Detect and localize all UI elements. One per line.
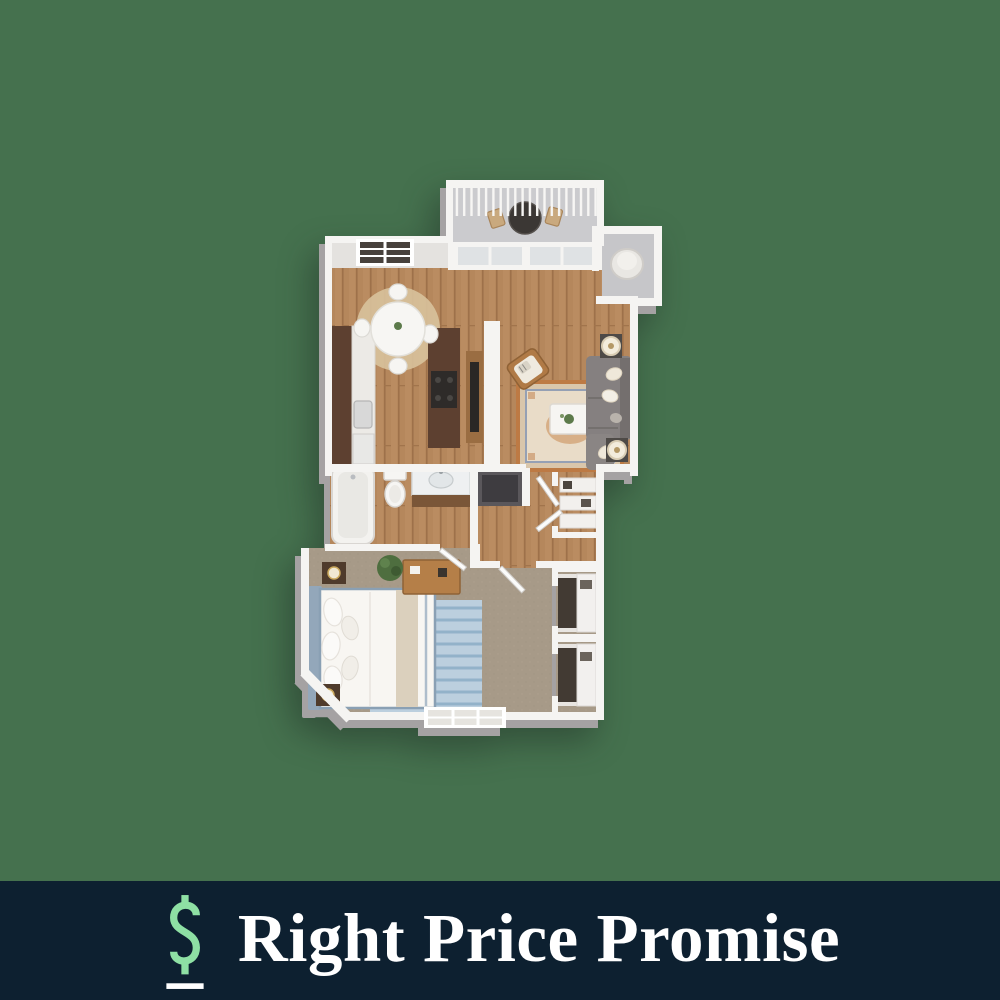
dollar-sign-icon [160, 891, 210, 993]
balcony-balusters [450, 186, 600, 216]
laundry-dark-recess [482, 475, 518, 502]
outer-wall [630, 298, 638, 476]
outer-wall [301, 548, 309, 676]
tv [470, 362, 479, 432]
table-centerpiece [394, 322, 402, 330]
cooktop [431, 371, 457, 408]
water-heater [611, 249, 643, 279]
coffee-table [550, 404, 588, 434]
half-wall [484, 321, 500, 471]
outer-wall [325, 236, 332, 476]
balcony-rail [446, 180, 604, 188]
linen-closet [560, 478, 596, 528]
side-table-lamp [600, 334, 622, 358]
sliding-glass-door [448, 242, 602, 270]
icon-underline [166, 983, 203, 989]
kitchen-appliance [353, 434, 374, 464]
side-table-lamp [606, 438, 628, 462]
kitchen-sink [354, 401, 372, 428]
hanging-clothes [558, 648, 577, 702]
floor-plan [300, 175, 665, 737]
kitchen-cabinets [330, 326, 352, 466]
bedroom-closet [558, 574, 596, 632]
dining-chair [389, 358, 407, 374]
potted-plant [377, 555, 403, 581]
banner-title: Right Price Promise [238, 904, 840, 977]
toilet [384, 469, 406, 507]
floor-plan-render [300, 175, 665, 737]
dresser [403, 560, 460, 594]
vanity [412, 466, 470, 507]
kitchen-window [356, 239, 414, 266]
bedroom-closet [558, 644, 596, 706]
page-background: Right Price Promise [0, 0, 1000, 1000]
dining-chair [354, 319, 370, 337]
bedroom [303, 555, 482, 714]
nightstand-lamp [322, 562, 346, 584]
hanging-clothes [558, 578, 577, 628]
bedroom-window [424, 707, 506, 728]
outer-wall [596, 468, 604, 720]
bathtub [332, 466, 374, 544]
promo-banner: Right Price Promise [0, 881, 1000, 1000]
bed-runner [396, 590, 418, 707]
vanity-cabinet [412, 495, 470, 507]
dining-chair [389, 284, 407, 300]
